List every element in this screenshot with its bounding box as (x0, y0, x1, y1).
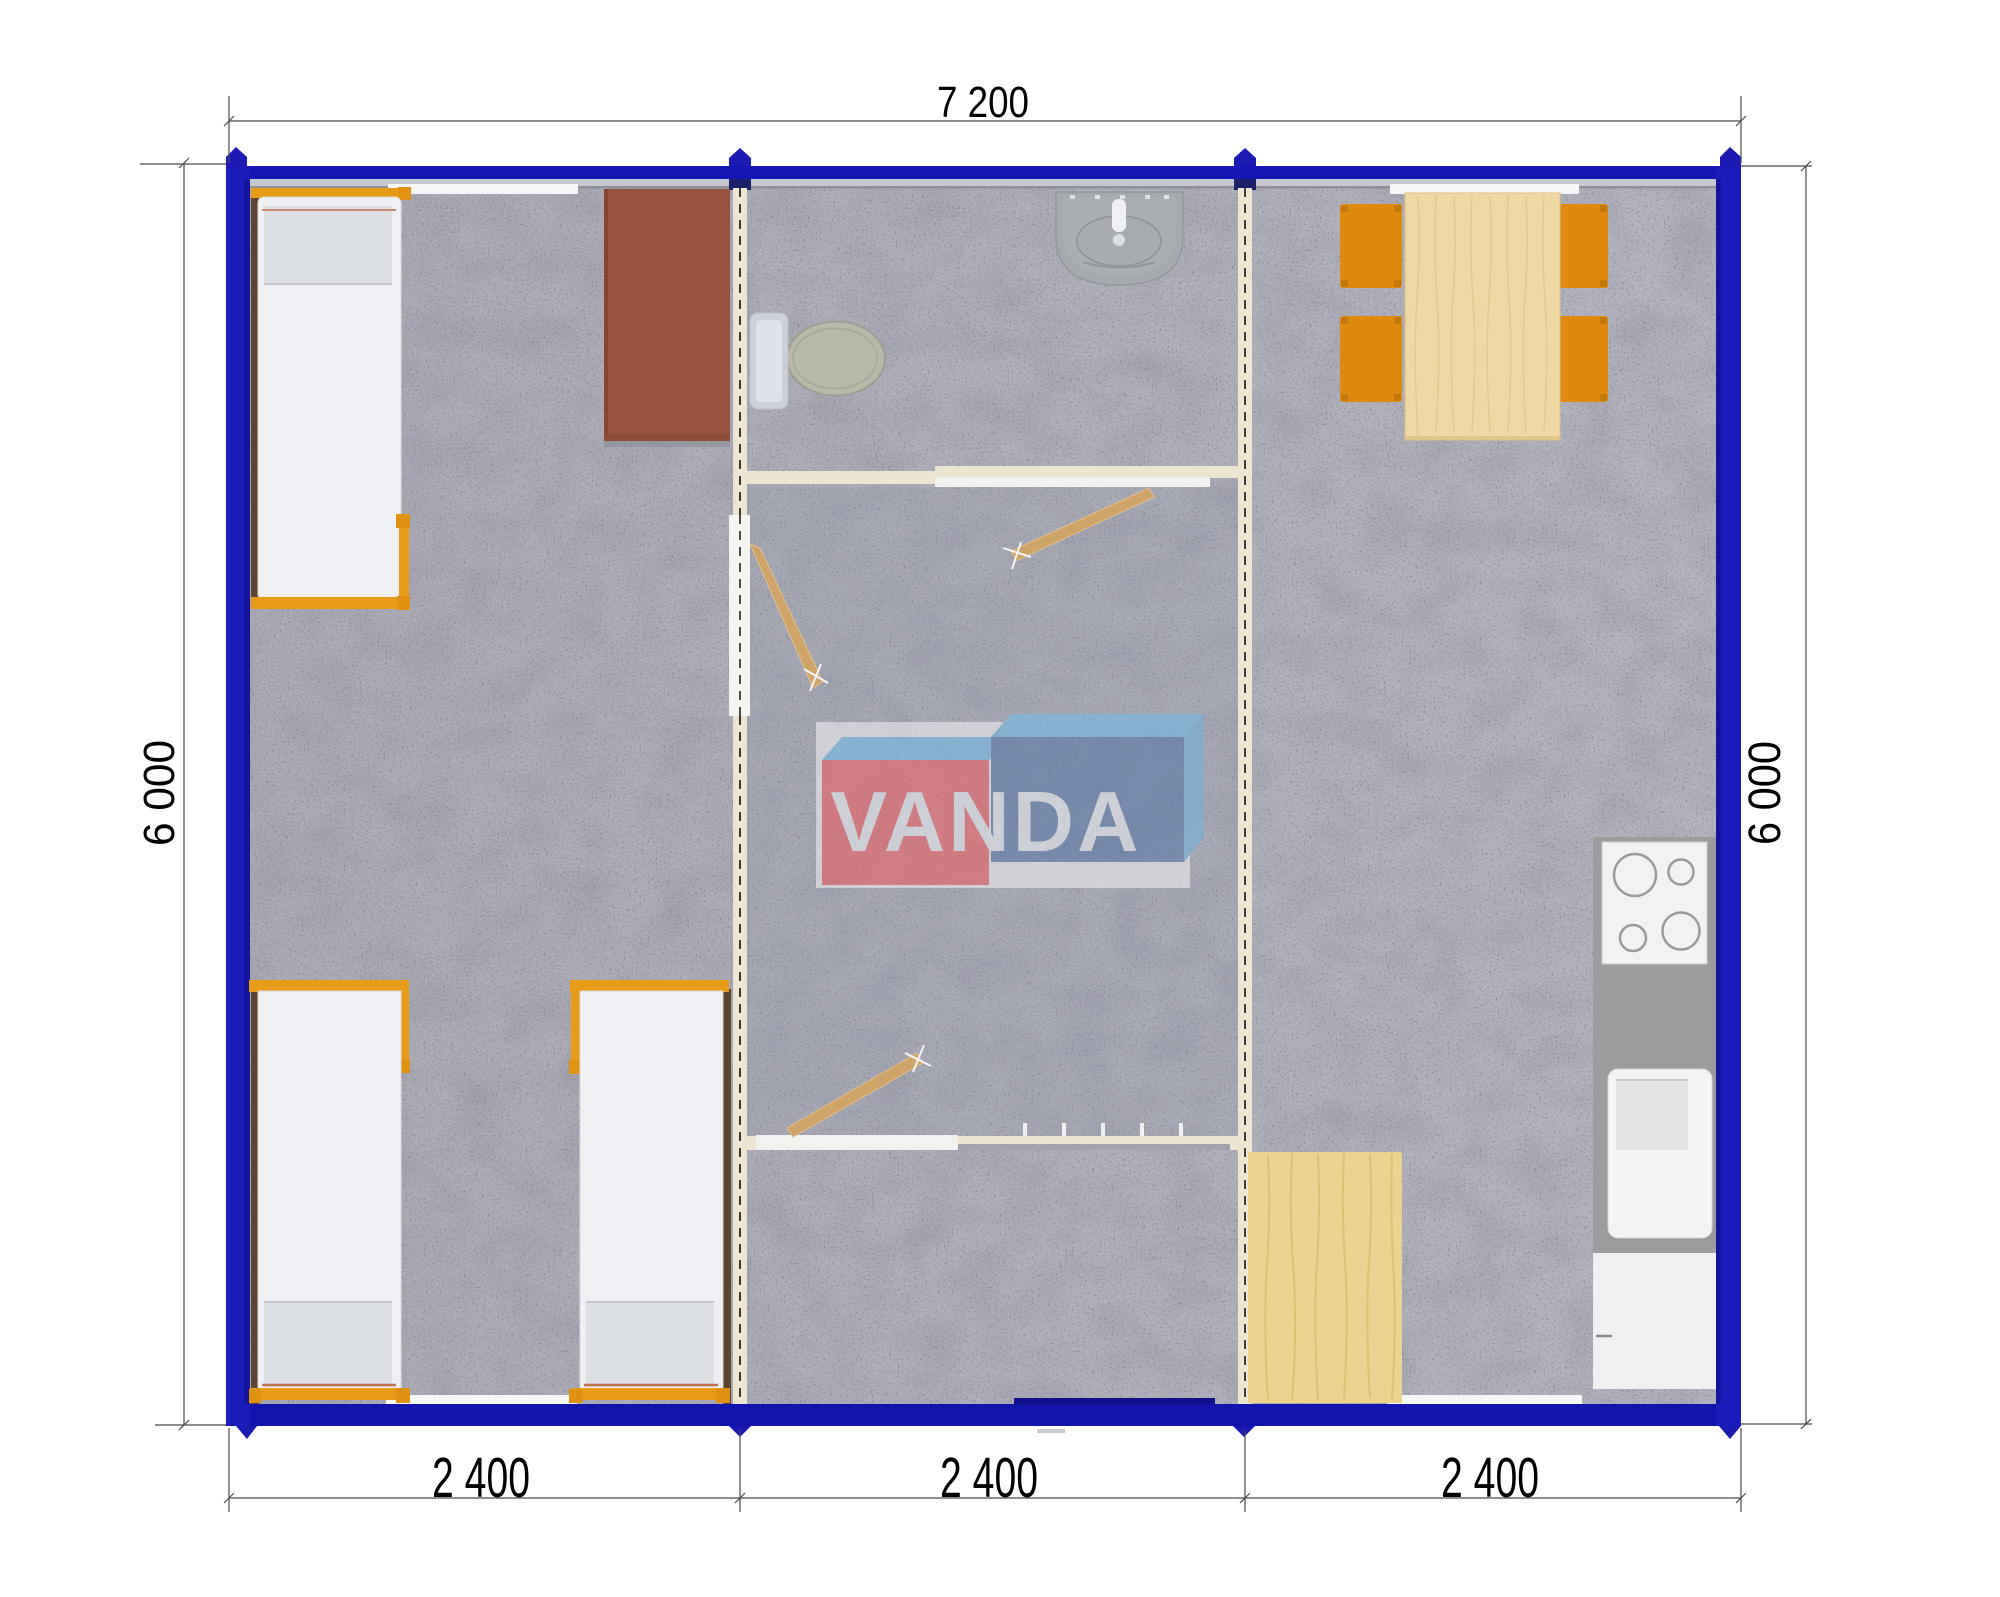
svg-text:2 400: 2 400 (1441, 1446, 1539, 1510)
svg-text:2 400: 2 400 (432, 1446, 530, 1510)
svg-text:2 400: 2 400 (940, 1446, 1038, 1510)
svg-text:6 000: 6 000 (1739, 741, 1790, 845)
svg-text:VANDA: VANDA (831, 775, 1142, 870)
svg-text:6 000: 6 000 (135, 740, 184, 846)
svg-text:7 200: 7 200 (937, 78, 1029, 127)
